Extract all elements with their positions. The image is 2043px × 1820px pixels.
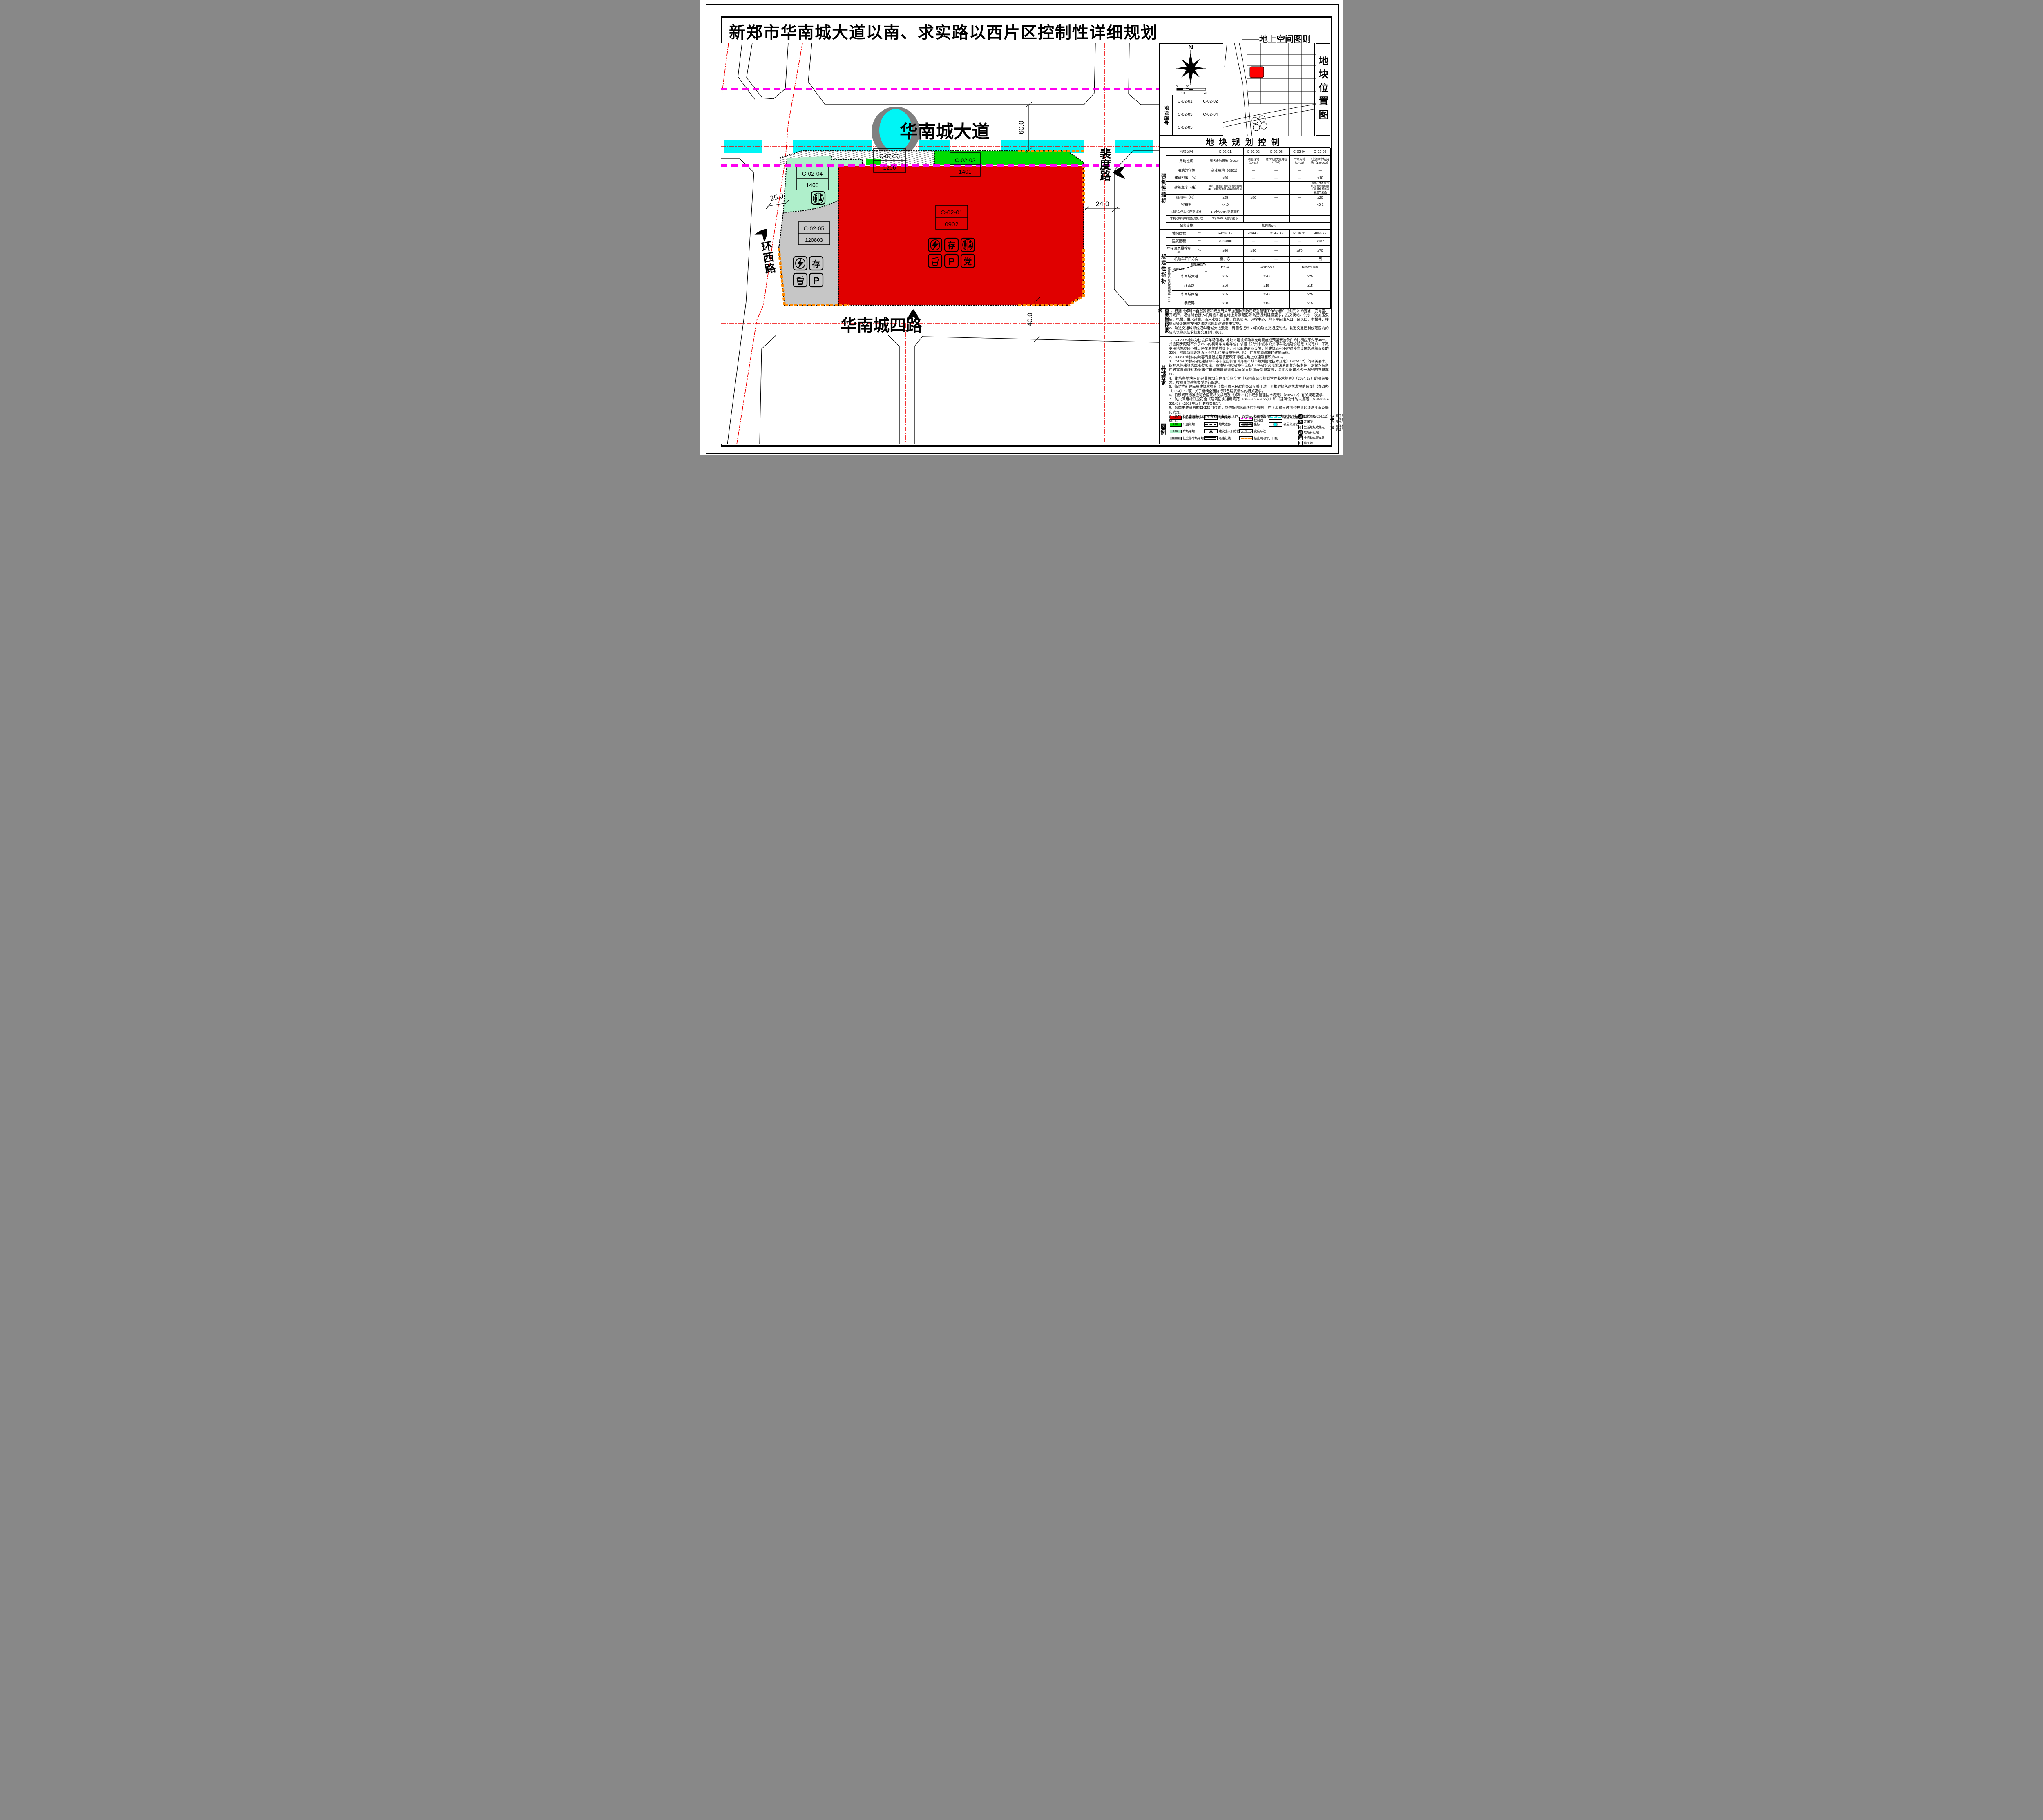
cell: — [1263, 201, 1290, 209]
cell: H≤24 [1207, 262, 1244, 272]
cell: <10，且须符合机场管理机构关于项目核准净空高度的复函 [1310, 182, 1331, 195]
cell: ≥15 [1244, 299, 1290, 308]
key-requirements-text: 1、根据《郑州市自然资源和规划局关于加强防洪防涝规划管理工作的通知（试行）》的要… [1167, 308, 1330, 336]
road-redline-symbol [1204, 436, 1218, 440]
cell: — [1244, 201, 1263, 209]
svg-text:10: 10 [1181, 91, 1185, 94]
plot-number-cell: C-02-01 [1173, 95, 1198, 108]
legend-landuse-commerce: 0902商务金融用地 [1170, 415, 1201, 420]
header-col: C-02-02 [1244, 148, 1263, 156]
trash-transfer-icon: 垃 [1298, 430, 1303, 435]
location-map[interactable] [1223, 43, 1316, 136]
setback-label: 建筑后退道路红线距离（m） [1166, 262, 1172, 308]
svg-text:P: P [813, 275, 819, 286]
svg-text:60.0: 60.0 [1017, 121, 1025, 134]
cell: — [1244, 182, 1263, 195]
cell: 公园绿地（1401） [1244, 156, 1263, 167]
cell: ≥15 [1207, 290, 1244, 299]
cell: 1.5个/100m²建筑面积 [1207, 209, 1244, 215]
cell: — [1290, 174, 1310, 182]
cell: ≥80 [1244, 194, 1263, 201]
cell: ≥20 [1310, 194, 1331, 201]
cell: — [1244, 215, 1263, 222]
legend-landuse-park: 1401公园绿地 [1170, 422, 1195, 427]
cell: — [1244, 237, 1263, 245]
cell: — [1263, 245, 1290, 256]
rail-control-line-symbol [1239, 417, 1253, 421]
cell: <0.1 [1310, 201, 1331, 209]
cell: 商业用地（0901） [1207, 167, 1244, 174]
cell: — [1290, 201, 1310, 209]
cell: 南、东 [1207, 256, 1244, 262]
cell: — [1244, 174, 1263, 182]
plan-sheet: 新郑市华南城大道以南、求实路以西片区控制性详细规划 ——地上空间图则 [700, 0, 1343, 455]
other-requirements-label: 其他要求 [1160, 337, 1167, 413]
legend-landuse-plaza: 1403广场用地 [1170, 429, 1195, 433]
plot-number-table: 地块编号 C-02-01 C-02-02 C-02-03 C-02-04 C-0… [1160, 95, 1223, 136]
row-unit: % [1192, 245, 1207, 256]
side-label-mandatory: 强制性指标 [1160, 148, 1166, 230]
row-label: 配套设施 [1166, 222, 1207, 229]
cell: <10 [1310, 174, 1331, 182]
legend-trash-point: 生活垃圾收集点 [1298, 425, 1325, 429]
cell: — [1244, 167, 1263, 174]
svg-text:1206: 1206 [883, 164, 896, 171]
row-label: 建筑高度（米） [1166, 182, 1207, 195]
other-requirements-text: 1、C-02-05地块为社会停车场用地，地块内建设机动车充电设施或预留安装条件的… [1167, 337, 1330, 413]
entrance-arrow-symbol [1204, 429, 1218, 433]
cell: 4299.7 [1244, 229, 1263, 237]
road-label-peidu: 裴度路 [1098, 148, 1111, 181]
plot-number-symbol: C-02-01 [1204, 415, 1218, 420]
page-title: 新郑市华南城大道以南、求实路以西片区控制性详细规划 [729, 19, 1158, 43]
cell: — [1263, 237, 1290, 245]
header-col: C-02-01 [1207, 148, 1244, 156]
cell: ≥20 [1244, 272, 1290, 281]
cell: — [1290, 215, 1310, 222]
key-requirements-label: 重要管控要求 [1160, 308, 1167, 336]
road-label-s4: 华南城四路 [840, 317, 923, 335]
cell: ≥10 [1207, 299, 1244, 308]
svg-text:C-02-03: C-02-03 [879, 153, 900, 159]
mail-icon: 邮 [1330, 426, 1334, 430]
toilet-icon [1298, 414, 1303, 419]
diagonal-header: 建筑高度(m) 道路名称 [1172, 262, 1207, 272]
svg-text:20: 20 [1186, 85, 1189, 88]
switch-station-icon [1298, 420, 1303, 424]
header-col: C-02-03 [1263, 148, 1290, 156]
row-label: 建筑密度（%） [1166, 174, 1207, 182]
trash-point-icon [1298, 425, 1303, 429]
svg-text:存: 存 [948, 241, 956, 250]
svg-text:C-02-02: C-02-02 [955, 157, 976, 163]
cell: ≥15 [1290, 281, 1331, 290]
svg-text:40: 40 [1204, 91, 1207, 94]
site-highlight [1250, 67, 1264, 78]
cell: ≥10 [1207, 281, 1244, 290]
plot-number-cell: C-02-05 [1173, 121, 1198, 134]
svg-text:P: P [948, 256, 954, 267]
cell: 60<H≤100 [1290, 262, 1331, 272]
cell: ≥25 [1290, 272, 1331, 281]
parking-swatch: 120803 [1170, 437, 1182, 440]
side-label-prescriptive: 规定性指标 [1160, 229, 1166, 308]
cell: 59202.17 [1207, 229, 1244, 237]
cell: — [1263, 256, 1290, 262]
row-unit: m² [1192, 237, 1207, 245]
header-col: C-02-04 [1290, 148, 1310, 156]
row-label: 用地兼容性 [1166, 167, 1207, 174]
svg-text:0: 0 [1176, 85, 1178, 88]
legend-rail-station: 轨道交通站 [1269, 422, 1298, 427]
row-label: 机动车停车位配建标准 [1166, 209, 1207, 215]
legend-toilet: 公共厕所 [1298, 414, 1316, 419]
cell: ≥70 [1290, 245, 1310, 256]
cell: ≥15 [1290, 299, 1331, 308]
location-section: N 0 20 10 40 [1160, 43, 1330, 136]
bike-storage-icon: 存 [1298, 435, 1303, 440]
legend-road-redline: 道路红线 [1204, 436, 1231, 440]
row-label: 容积率 [1166, 201, 1207, 209]
cell: — [1290, 194, 1310, 201]
legend-width-annotation: 40宽度标注 [1239, 429, 1266, 433]
coordinate-symbol: X=44329.000Y=62730.913 [1239, 422, 1253, 427]
legend-plot-boundary: 地块边界 [1204, 422, 1231, 427]
right-panel: N 0 20 10 40 [1159, 43, 1330, 444]
cell: 24<H≤60 [1244, 262, 1290, 272]
cell: ≥25 [1290, 290, 1331, 299]
header-col: C-02-05 [1310, 148, 1331, 156]
cell: ≥90 [1244, 245, 1263, 256]
cell: <236800 [1207, 237, 1244, 245]
plot-number-label: 地块编号 [1160, 95, 1173, 136]
legend-landuse-parking: 120803社会停车场用地 [1170, 436, 1204, 440]
svg-text:C-02-05: C-02-05 [804, 225, 825, 232]
svg-text:40: 40 [1245, 430, 1247, 433]
svg-text:120803: 120803 [805, 237, 823, 243]
legend-parking-lot: P停车场 [1298, 441, 1313, 445]
plot-label-C-02-01: C-02-01 0902 [936, 205, 968, 229]
legend-section: 图例 0902商务金融用地 1401公园绿地 1403广场用地 120803社会… [1160, 413, 1330, 444]
north-letter: N [1188, 43, 1193, 51]
road-label-ave: 华南城大道 [900, 122, 990, 142]
other-requirements-section: 其他要求 1、C-02-05地块为社会停车场用地，地块内建设机动车充电设施或预留… [1160, 337, 1330, 413]
width-annotation-symbol: 40 [1239, 429, 1253, 433]
cell: — [1290, 209, 1310, 215]
cell: 如图所示 [1207, 222, 1331, 229]
cell: — [1263, 167, 1290, 174]
cell: 城市轨道交通用地（1206） [1263, 156, 1290, 167]
cell: ≥25 [1207, 194, 1244, 201]
legend-coordinate: X=44329.000Y=62730.913坐标 [1239, 422, 1260, 427]
cell: <987 [1310, 237, 1331, 245]
cell: — [1310, 167, 1331, 174]
cell: <80，且须符合机场管理机构关于项目核准净空高度的复函 [1207, 182, 1244, 195]
party-room-icon: 党 [1330, 415, 1334, 420]
cell: <50 [1207, 174, 1244, 182]
cell: 2个/100m²建筑面积 [1207, 215, 1244, 222]
cell: ≥70 [1310, 245, 1331, 256]
svg-text:0902: 0902 [945, 221, 958, 228]
legend-rail-line: 轨道交通线 [1269, 415, 1298, 420]
rail-line-symbol [1269, 415, 1282, 420]
legend-no-opening: 禁止机动车开口段 [1239, 436, 1278, 440]
location-caption: 地块位置图 [1314, 43, 1330, 136]
cell: — [1263, 174, 1290, 182]
row-unit: m² [1192, 229, 1207, 237]
plot-C-02-05-parking[interactable] [779, 200, 838, 305]
plot-number-cell: C-02-03 [1173, 108, 1198, 121]
cell: — [1263, 209, 1290, 215]
legend-mail: 邮邮件快递送达设施 [1330, 425, 1343, 431]
control-table: 强制性指标 地块编号 C-02-01 C-02-02 C-02-03 C-02-… [1160, 148, 1331, 309]
svg-text:C-02-04: C-02-04 [802, 170, 823, 177]
cell: — [1244, 256, 1263, 262]
plot-C-02-01-commerce[interactable] [838, 166, 1084, 305]
scale-bar: 0 20 10 40 [1175, 85, 1232, 94]
park-green-notch [866, 159, 881, 165]
row-label: 华南城大道 [1172, 272, 1207, 281]
cell: — [1263, 194, 1290, 201]
commerce-swatch: 0902 [1170, 416, 1182, 420]
cell: — [1310, 209, 1331, 215]
row-label: 华南城四路 [1172, 290, 1207, 299]
cell: — [1290, 237, 1310, 245]
cell: 2195.06 [1263, 229, 1290, 237]
svg-text:C-02-01: C-02-01 [941, 209, 963, 216]
row-label: 建筑面积 [1166, 237, 1192, 245]
cell: — [1263, 182, 1290, 195]
cell: — [1263, 215, 1290, 222]
plot-number-cell: C-02-04 [1198, 108, 1223, 121]
park-swatch: 1401 [1170, 423, 1182, 427]
plaza-swatch: 1403 [1170, 430, 1182, 433]
row-label: 环西路 [1172, 281, 1207, 290]
legend-rail-control-line: 轨道交通控制线 [1239, 415, 1268, 422]
svg-text:存: 存 [812, 259, 820, 269]
row-label: 绿地率（%） [1166, 194, 1207, 201]
cell: ≥15 [1244, 281, 1290, 290]
plot-boundary-symbol [1204, 422, 1218, 427]
rail-station-symbol [1269, 422, 1282, 427]
cell: — [1244, 209, 1263, 215]
cell: — [1290, 256, 1310, 262]
planning-map[interactable]: C-02-01 0902 C-02-02 1401 C-02-03 1206 C… [721, 43, 1159, 444]
svg-text:24.0: 24.0 [1095, 200, 1109, 208]
cell: — [1310, 215, 1331, 222]
legend-substation: 变电室 [1330, 420, 1343, 424]
cell: 广场用地（1403） [1290, 156, 1310, 167]
cell: ≥15 [1207, 272, 1244, 281]
cell: — [1290, 182, 1310, 195]
row-label: 裴度路 [1172, 299, 1207, 308]
cell: 社会停车场用地（120803） [1310, 156, 1331, 167]
svg-text:1401: 1401 [959, 168, 971, 175]
cell: 9866.72 [1310, 229, 1331, 237]
key-requirements-section: 重要管控要求 1、根据《郑州市自然资源和规划局关于加强防洪防涝规划管理工作的通知… [1160, 308, 1330, 337]
legend-switch-station: 开闭所 [1298, 420, 1313, 424]
cell: — [1290, 167, 1310, 174]
row-label: 用地性质 [1166, 156, 1207, 167]
svg-text:1403: 1403 [806, 182, 818, 188]
plot-number-cell [1198, 121, 1223, 134]
legend-plot-number: C-02-01地块编号 [1204, 415, 1231, 420]
north-compass: N [1160, 43, 1223, 86]
substation-icon [1330, 420, 1334, 424]
parking-lot-icon: P [1298, 441, 1303, 445]
cell: 商务金融用地（0902） [1207, 156, 1244, 167]
legend-trash-transfer: 垃垃圾转运站 [1298, 430, 1319, 435]
cell: ≥80 [1207, 245, 1244, 256]
row-label: 年径流总量控制率 [1166, 245, 1192, 256]
cell: ≥20 [1244, 290, 1290, 299]
cell: <4.0 [1207, 201, 1244, 209]
plot-number-cell: C-02-02 [1198, 95, 1223, 108]
row-label: 非机动车停车位配建标准 [1166, 215, 1207, 222]
legend-bike-storage: 存非机动车存车处 [1298, 435, 1325, 440]
svg-text:党: 党 [964, 257, 972, 266]
cell: 5179.31 [1290, 229, 1310, 237]
legend-entrance-arrow: 建议出入口方位 [1204, 429, 1240, 433]
legend-label: 图例 [1160, 413, 1167, 444]
row-label: 地块面积 [1166, 229, 1192, 237]
svg-text:40.0: 40.0 [1026, 313, 1034, 326]
plot-label-C-02-04: C-02-04 1403 [797, 167, 828, 190]
header-label: 地块编号 [1166, 148, 1207, 156]
no-opening-symbol [1239, 436, 1253, 440]
control-table-title: 地块规划控制 [1160, 136, 1330, 148]
cell: 西 [1310, 256, 1331, 262]
row-label: 机动车开口方向 [1166, 256, 1207, 262]
plot-label-C-02-05: C-02-05 120803 [798, 222, 830, 245]
